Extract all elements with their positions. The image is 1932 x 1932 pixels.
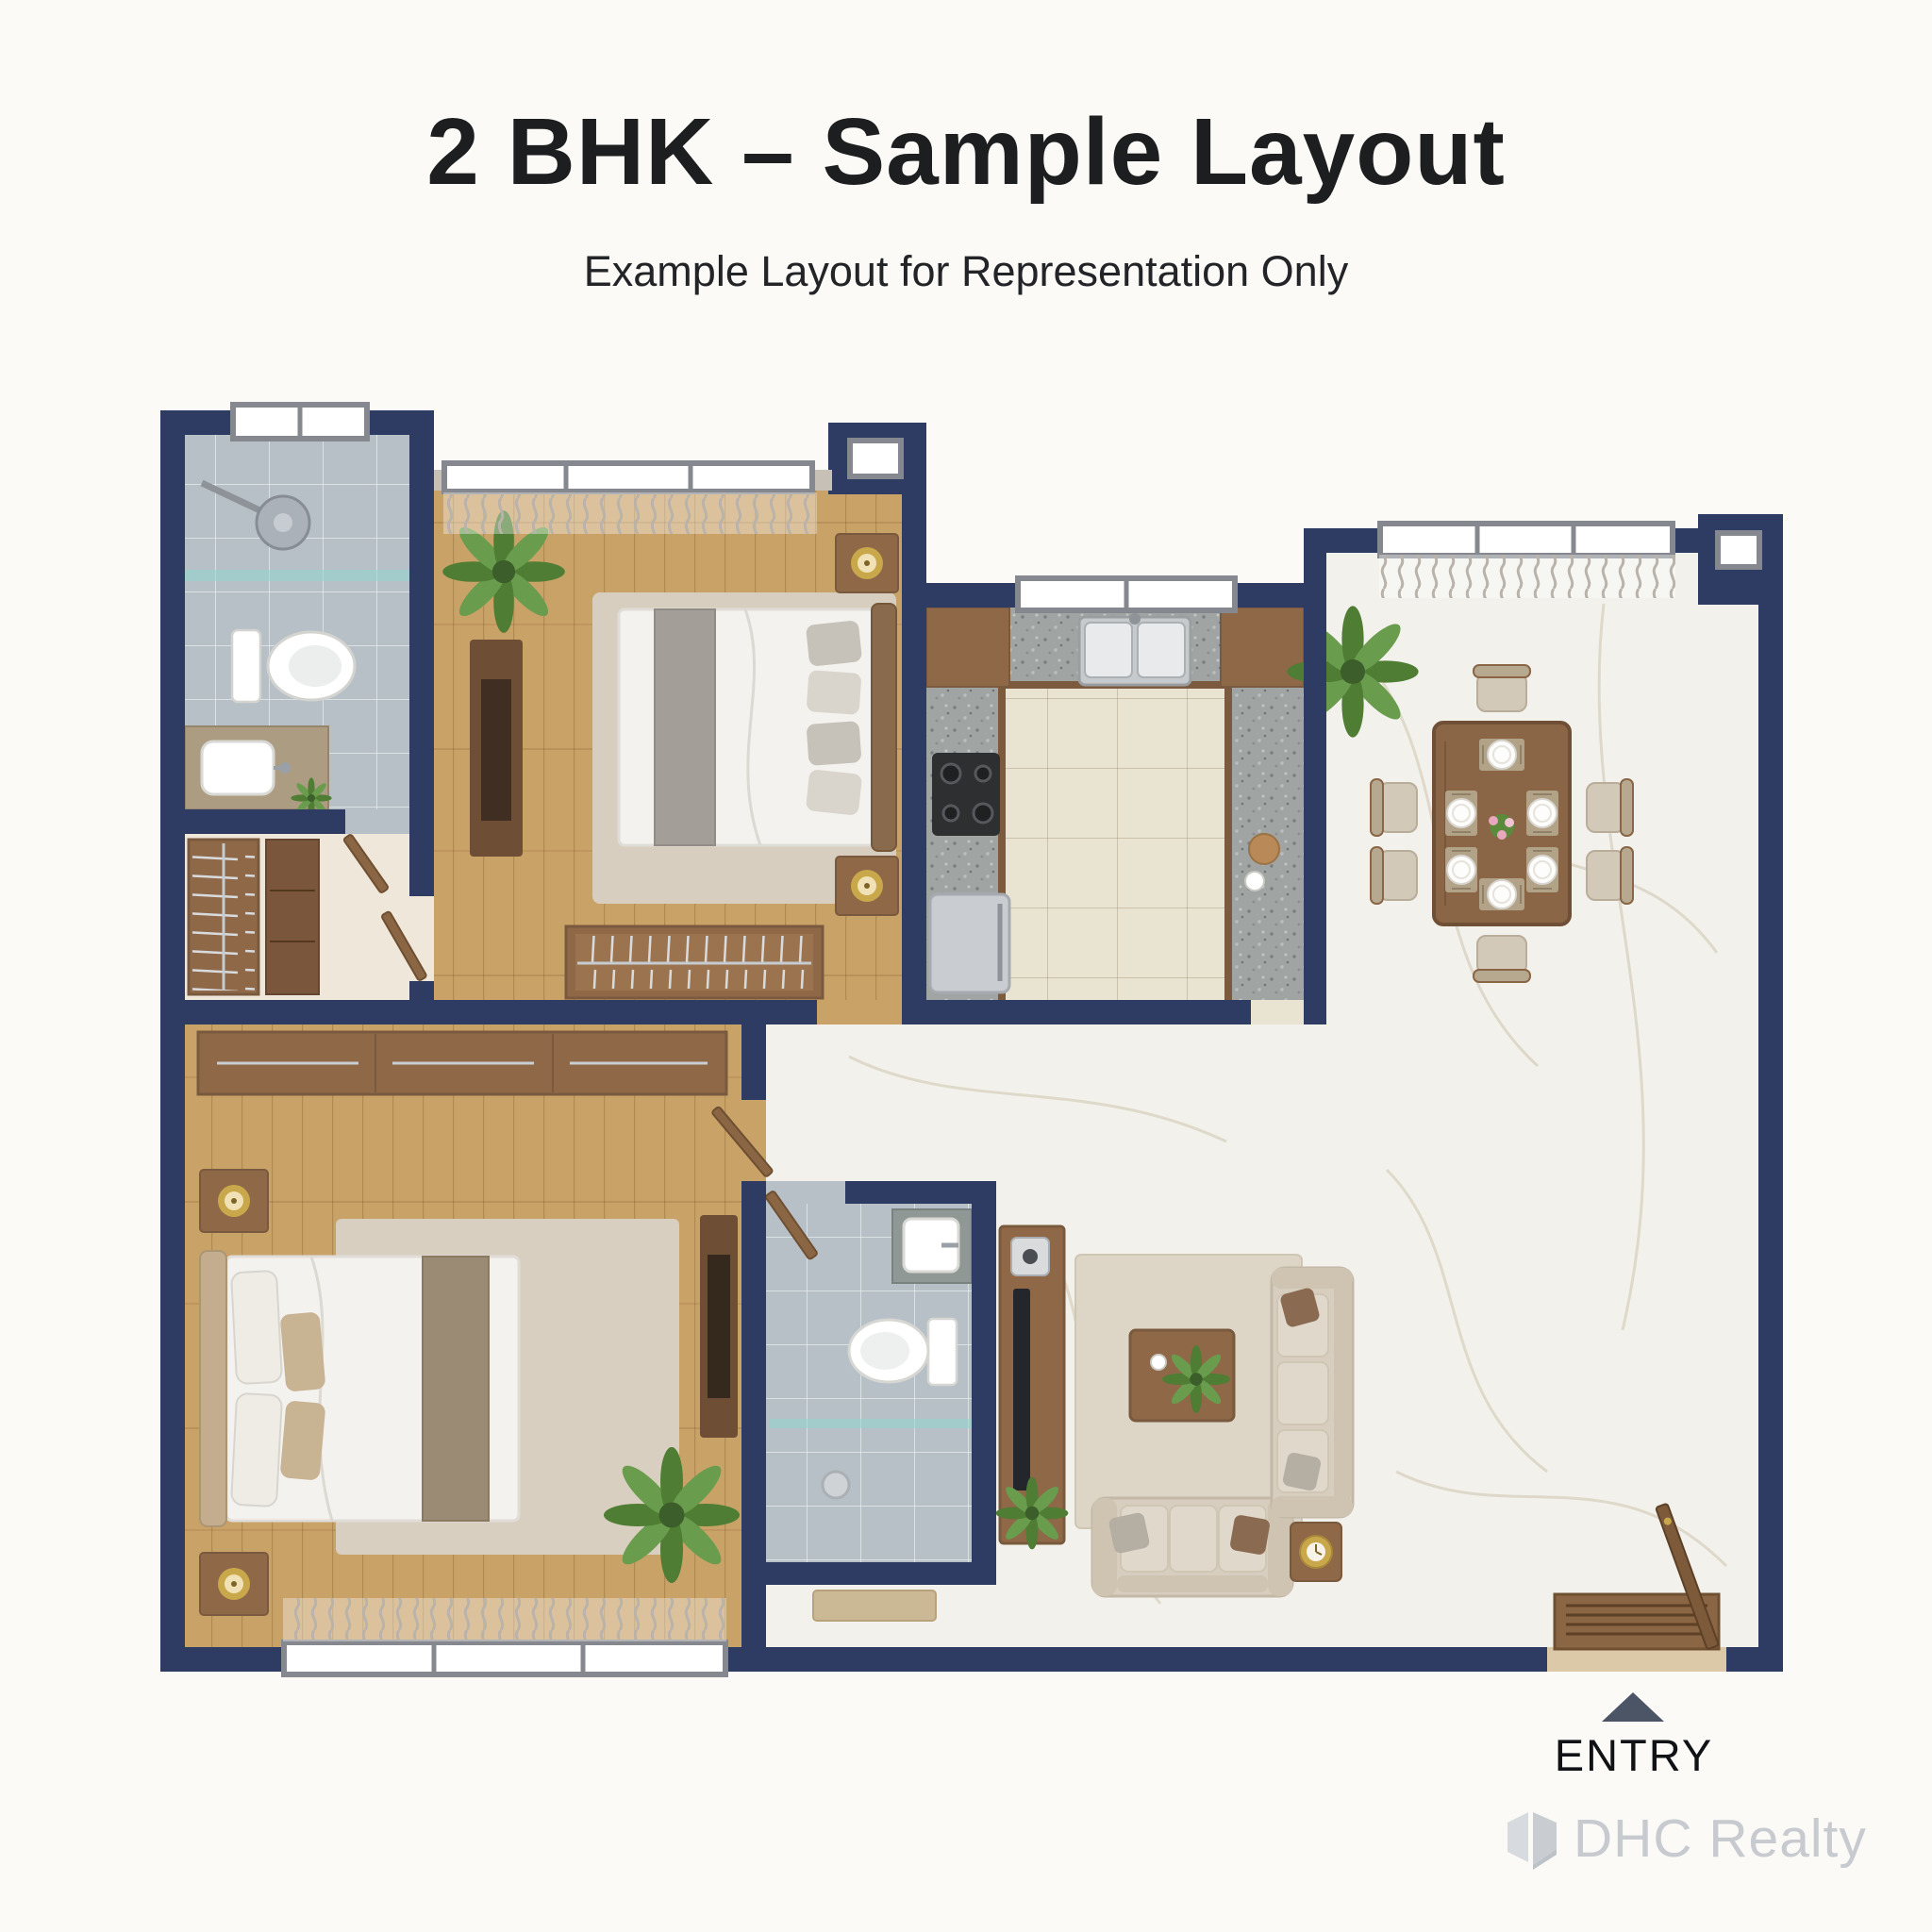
window-master [281, 1640, 728, 1677]
kitchen-floor-grid [1006, 689, 1224, 1000]
master-pillow-1 [231, 1271, 282, 1384]
kitchen-door-threshold [1251, 1000, 1304, 1024]
wall-master-bath2-left [741, 1181, 766, 1672]
window-corner-block-topright [1715, 530, 1762, 570]
dining-chair-right-1 [1587, 779, 1633, 836]
sofa-pillow-brown [1229, 1514, 1271, 1556]
wall-bath2-bottom [766, 1562, 996, 1585]
kitchen-fridge [930, 894, 1009, 992]
master-plant [604, 1447, 740, 1583]
toilet-tank [232, 630, 260, 702]
window-kitchen [1015, 575, 1238, 613]
bedroom-1-lamp-top [851, 547, 883, 579]
dining-chair-right-2 [1587, 847, 1633, 904]
curtain-bedroom1 [443, 492, 817, 534]
watermark: DHC Realty [1502, 1807, 1867, 1870]
tv-console-plant [996, 1477, 1069, 1550]
master-pillow-2 [231, 1393, 282, 1507]
page: { "page": { "background": "#fbfaf7", "ti… [0, 0, 1932, 1932]
dining-chair-left-2 [1371, 847, 1417, 904]
bedroom-1-dresser-top [481, 679, 511, 821]
bathroom-2-drain [823, 1472, 849, 1498]
kitchen-jar [1249, 834, 1279, 864]
tv-console [996, 1226, 1069, 1549]
plate-top [1479, 739, 1524, 771]
wall-kitchen-right [1304, 528, 1326, 1024]
speaker-cone [1023, 1249, 1038, 1264]
bedroom-1-headboard [872, 604, 896, 851]
bathroom-2-toilet-tank [928, 1319, 957, 1385]
plate-bottom [1479, 878, 1524, 910]
bathroom-2-doormat [813, 1591, 936, 1621]
kitchen-cooktop [932, 753, 1000, 836]
burner-3 [943, 806, 958, 821]
burner-4 [974, 804, 992, 823]
master-pillow-3 [280, 1311, 326, 1391]
wall-kitchen-top-right [1238, 583, 1304, 608]
entry-label: ENTRY [1534, 1729, 1734, 1781]
dining-chair-top [1474, 665, 1530, 711]
window-dining [1377, 521, 1675, 558]
wall-central [160, 1000, 817, 1024]
kitchen-cabinet-left [926, 608, 1009, 687]
master-pillow-4 [280, 1400, 326, 1480]
plate-right-2 [1526, 847, 1558, 892]
plate-left-1 [1445, 791, 1477, 836]
bedroom-1-pillow-3 [807, 721, 862, 766]
bedroom-1-pillow-1 [806, 620, 862, 667]
closet-drawers [266, 840, 319, 994]
sofa-three-seater [1092, 1498, 1292, 1596]
kitchen-faucet [1129, 613, 1141, 625]
vanity-basin [202, 741, 274, 794]
dining-chair-left-1 [1371, 779, 1417, 836]
entry-arrow-icon [1602, 1692, 1664, 1722]
bathroom-1-door-threshold [345, 809, 409, 834]
floor-plan [0, 0, 1932, 1932]
curtain-dining [1379, 555, 1675, 598]
wall-kitchen-top-left [926, 583, 1015, 608]
wall-bath2-right [972, 1181, 996, 1585]
bedroom-1-pillow-2 [807, 670, 862, 715]
bedroom-1-door-threshold [817, 1000, 902, 1024]
curtain-master [283, 1598, 726, 1641]
watermark-brand: DHC Realty [1574, 1807, 1867, 1870]
house-cube-icon [1502, 1807, 1562, 1870]
burner-1 [941, 764, 960, 783]
bedroom-1-lamp-bottom [851, 870, 883, 902]
wall-outer-right [1758, 528, 1783, 1672]
wall-bath1-bottom [160, 809, 345, 834]
sofa-cushion-2 [1170, 1506, 1217, 1572]
sofa-two-seater [1272, 1268, 1353, 1517]
hallway-floor [766, 1024, 1326, 1181]
master-lamp-bottom [218, 1568, 250, 1600]
bathroom-2-glass-shelf [770, 1419, 972, 1428]
coffee-table-cup [1151, 1355, 1166, 1370]
wall-outer-left [160, 410, 185, 1672]
shower-glass-partition [185, 570, 409, 581]
plate-right-1 [1526, 791, 1558, 836]
shower-head-center [274, 513, 292, 532]
kitchen-sink-basin-left [1085, 623, 1132, 677]
sofa-arm-left [1092, 1498, 1117, 1596]
walk-in-closet [189, 840, 319, 994]
coffee-table-plant [1162, 1345, 1230, 1413]
wall-kitchen-bottom [902, 1000, 1251, 1024]
sofa2-pillow-grey [1282, 1452, 1323, 1492]
sofa2-cushion-2 [1277, 1362, 1328, 1424]
sofa2-back [1334, 1275, 1351, 1502]
bathroom-2-toilet-seat [860, 1332, 909, 1370]
sofa-back [1117, 1575, 1268, 1592]
master-lamp-top [218, 1185, 250, 1217]
television [1013, 1289, 1030, 1491]
dining-chair-bottom [1474, 936, 1530, 982]
bedroom-1-bed-throw [655, 609, 715, 845]
master-headboard [200, 1251, 226, 1526]
plate-left-2 [1445, 847, 1477, 892]
wall-bath1-right [409, 410, 434, 896]
living-room [1075, 1255, 1353, 1596]
master-dresser-top [708, 1255, 730, 1398]
kitchen-cup [1245, 872, 1264, 891]
window-corner-block [847, 438, 904, 479]
wall-bedroom1-kitchen [902, 494, 926, 1000]
sofa-pillow-grey [1108, 1511, 1150, 1554]
window-bedroom1 [434, 460, 832, 494]
window-bath1 [230, 402, 370, 441]
burner-2 [975, 766, 991, 781]
wall-master-right-upper [741, 1024, 766, 1100]
wall-outer-bottom-right [1726, 1647, 1783, 1672]
kitchen-sink-basin-right [1138, 623, 1185, 677]
master-bed-throw [423, 1257, 489, 1521]
bedroom-1-pillow-4 [806, 769, 862, 816]
toilet-seat [289, 645, 341, 687]
